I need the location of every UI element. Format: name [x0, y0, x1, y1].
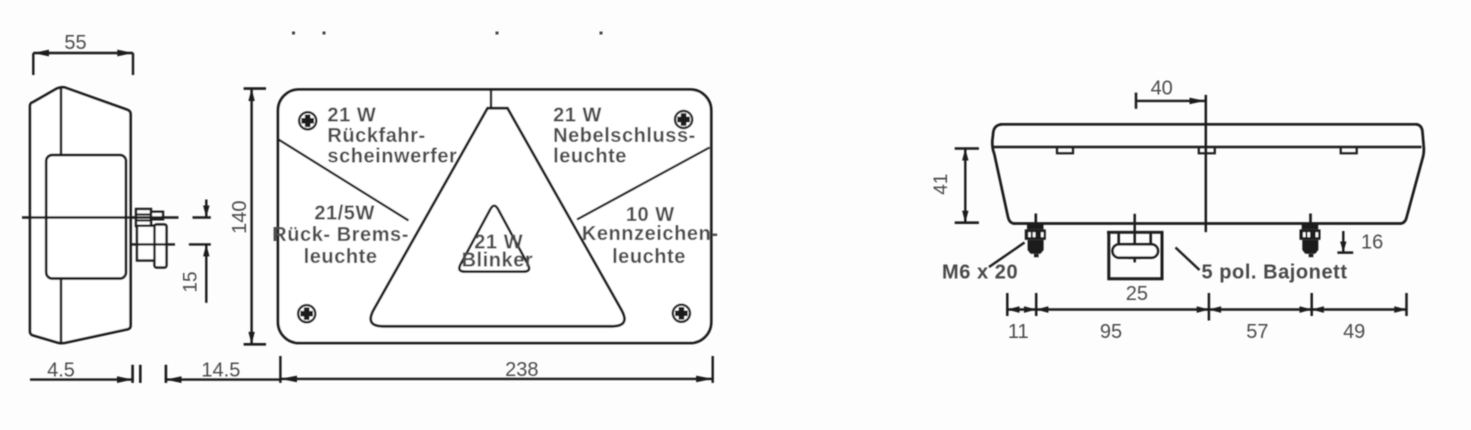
svg-text:4.5: 4.5 [47, 360, 75, 382]
svg-text:238: 238 [505, 359, 538, 381]
svg-text:M6 x 20: M6 x 20 [942, 262, 1018, 284]
svg-text:Rück- Brems-: Rück- Brems- [272, 224, 409, 246]
svg-text:21 W: 21 W [327, 105, 376, 127]
svg-text:140: 140 [229, 201, 251, 234]
svg-text:40: 40 [1151, 78, 1173, 100]
svg-text:95: 95 [1100, 321, 1122, 343]
svg-text:Nebelschluss-: Nebelschluss- [553, 125, 696, 147]
svg-text:21 W: 21 W [553, 105, 602, 127]
svg-text:Kennzeichen-: Kennzeichen- [582, 223, 719, 245]
svg-text:Rückfahr-: Rückfahr- [327, 125, 425, 147]
svg-text:49: 49 [1343, 321, 1365, 343]
svg-text:15: 15 [181, 271, 202, 292]
svg-text:11: 11 [1008, 321, 1029, 343]
svg-text:14.5: 14.5 [201, 360, 240, 382]
svg-text:55: 55 [64, 32, 86, 54]
svg-text:25: 25 [1126, 283, 1148, 305]
svg-text:5 pol. Bajonett: 5 pol. Bajonett [1202, 262, 1348, 284]
svg-text:scheinwerfer: scheinwerfer [327, 145, 457, 167]
svg-text:leuchte: leuchte [304, 246, 378, 268]
svg-text:41: 41 [931, 174, 952, 195]
svg-text:57: 57 [1246, 321, 1268, 343]
svg-text:21/5W: 21/5W [314, 203, 375, 225]
svg-text:leuchte: leuchte [612, 246, 686, 268]
svg-text:leuchte: leuchte [553, 145, 627, 167]
svg-text:16: 16 [1361, 232, 1383, 254]
svg-text:Blinker: Blinker [462, 249, 534, 271]
